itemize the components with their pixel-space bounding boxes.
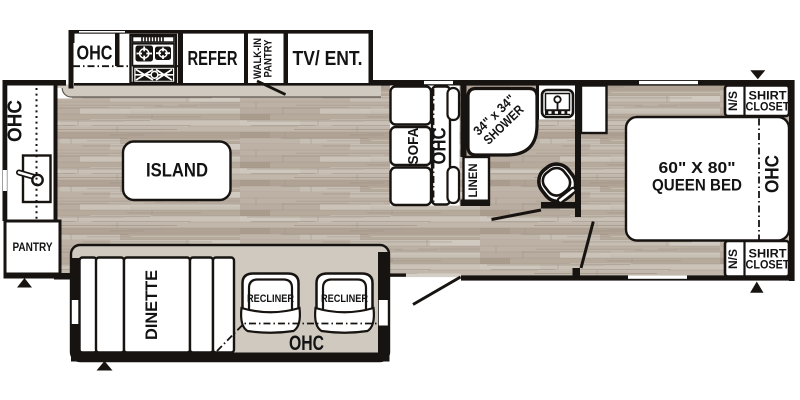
svg-text:LINEN: LINEN xyxy=(468,164,480,198)
svg-text:N/S: N/S xyxy=(728,91,740,111)
svg-text:OHC: OHC xyxy=(763,155,784,193)
svg-text:REFER: REFER xyxy=(188,48,238,70)
svg-text:ISLAND: ISLAND xyxy=(146,161,208,182)
svg-text:OHC: OHC xyxy=(430,127,451,164)
svg-text:RECLINER: RECLINER xyxy=(321,293,368,305)
svg-text:OHC: OHC xyxy=(5,100,27,142)
svg-text:OHC: OHC xyxy=(289,332,324,355)
svg-text:N/S: N/S xyxy=(728,249,740,269)
svg-text:RECLINER: RECLINER xyxy=(247,293,294,305)
svg-text:TV/ ENT.: TV/ ENT. xyxy=(293,48,363,70)
svg-text:60" X 80": 60" X 80" xyxy=(659,160,736,177)
svg-text:DINETTE: DINETTE xyxy=(143,270,161,340)
svg-text:QUEEN BED: QUEEN BED xyxy=(652,177,742,195)
svg-text:SOFA: SOFA xyxy=(405,127,422,164)
svg-text:CLOSET: CLOSET xyxy=(746,102,790,114)
svg-text:PANTRY: PANTRY xyxy=(263,39,275,78)
svg-text:PANTRY: PANTRY xyxy=(13,240,53,254)
svg-text:CLOSET: CLOSET xyxy=(746,260,790,272)
svg-text:OHC: OHC xyxy=(77,43,113,65)
